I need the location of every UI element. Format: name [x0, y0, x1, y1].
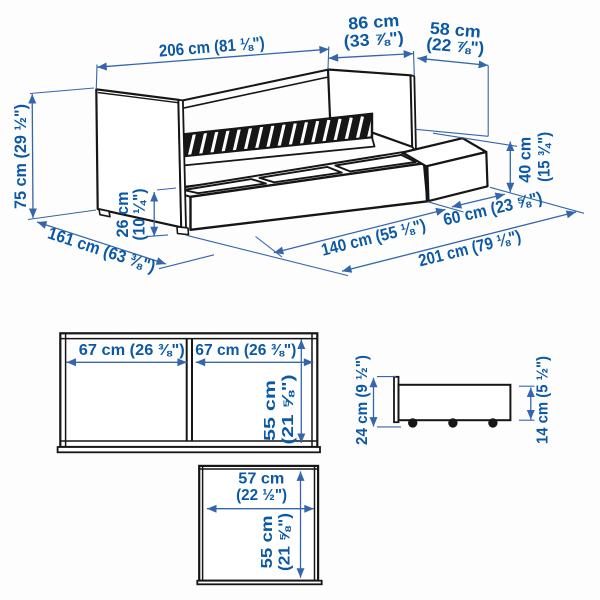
svg-text:(21 ⅝"): (21 ⅝"): [276, 513, 293, 571]
svg-text:24 cm (9 ½"): 24 cm (9 ½"): [354, 355, 371, 445]
svg-text:55 cm: 55 cm: [262, 380, 279, 441]
svg-text:57 cm: 57 cm: [238, 471, 284, 488]
svg-text:14 cm (5 ½"): 14 cm (5 ½"): [535, 356, 552, 444]
svg-text:(10 ¼"): (10 ¼"): [129, 189, 148, 241]
svg-text:67 cm (26 ⅜"): 67 cm (26 ⅜"): [79, 342, 185, 359]
svg-text:55 cm: 55 cm: [259, 516, 276, 569]
svg-text:75 cm (29 ½"): 75 cm (29 ½"): [11, 104, 30, 209]
svg-text:(21 ⅝"): (21 ⅝"): [280, 375, 297, 445]
svg-text:40 cm: 40 cm: [515, 137, 534, 183]
svg-text:67 cm (26 ⅜"): 67 cm (26 ⅜"): [195, 342, 296, 359]
svg-text:(22 ½"): (22 ½"): [236, 487, 287, 504]
svg-text:(15 ¾"): (15 ¾"): [534, 132, 553, 182]
